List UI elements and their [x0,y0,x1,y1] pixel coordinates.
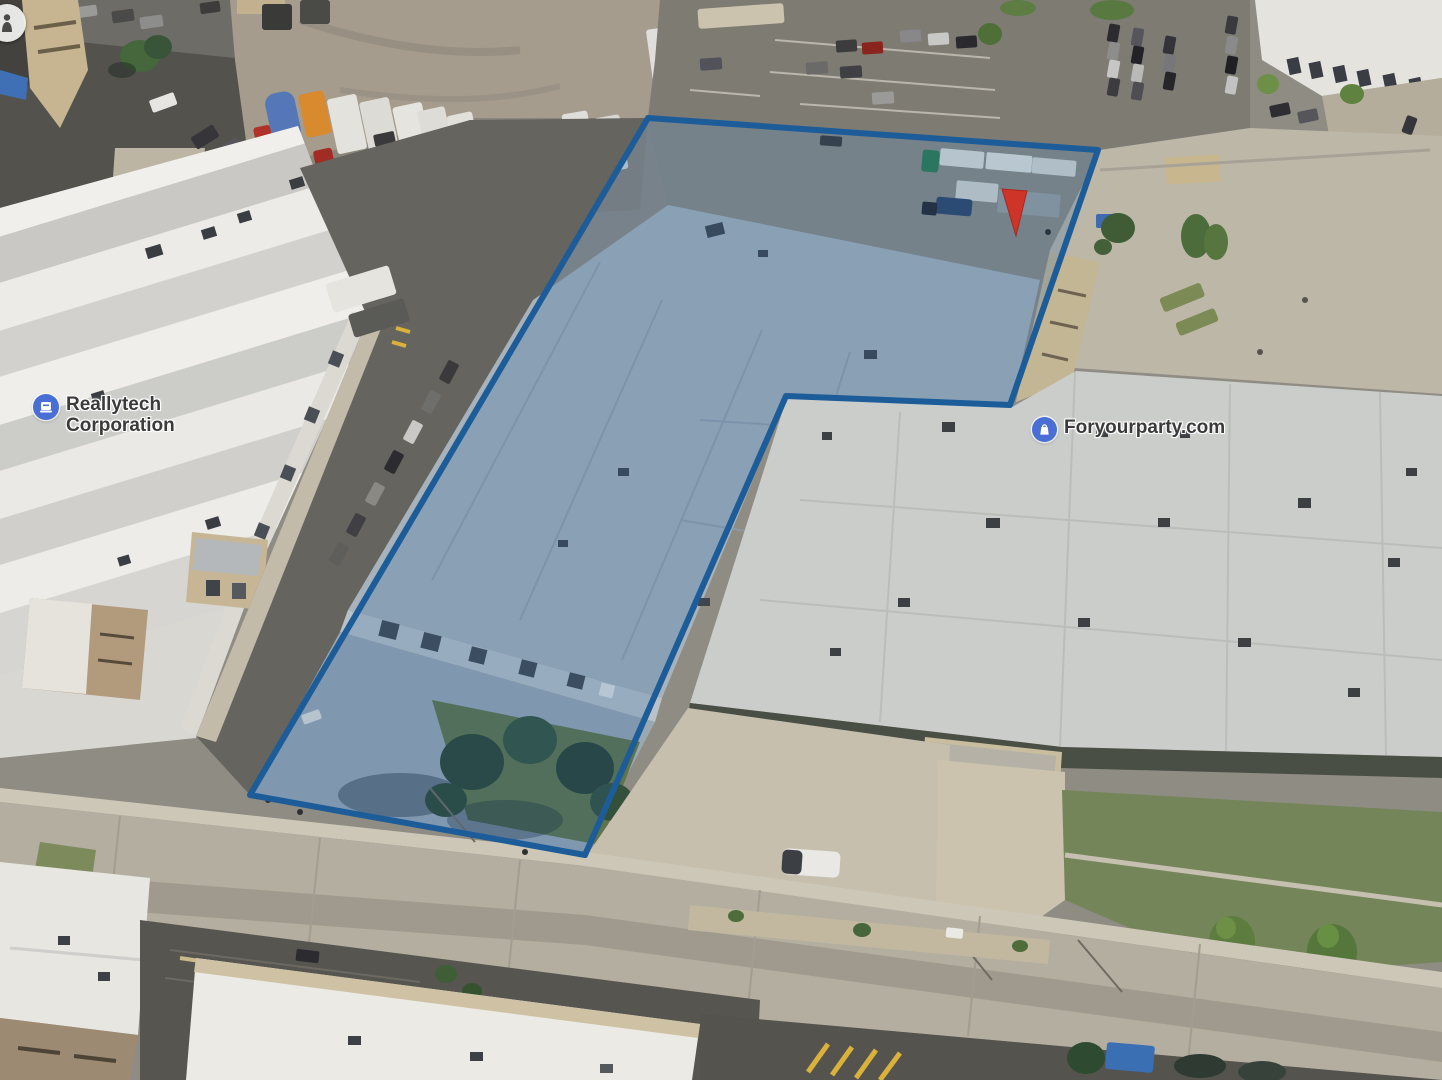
blue-dumpster [1105,1042,1155,1073]
person-glyph [0,13,16,33]
office-building-icon [33,394,59,420]
map-label-text: Reallytech Corporation [66,394,175,436]
map-label-text: Foryourparty.com [1064,417,1225,438]
map-label-reallytech[interactable]: Reallytech Corporation [33,394,175,436]
aerial-scene [0,0,1442,1080]
aerial-map-view: Reallytech Corporation Foryourparty.com [0,0,1442,1080]
tan-shed [1165,155,1220,185]
map-label-foryourparty[interactable]: Foryourparty.com [1032,417,1225,442]
shopping-bag-icon [1032,417,1057,442]
